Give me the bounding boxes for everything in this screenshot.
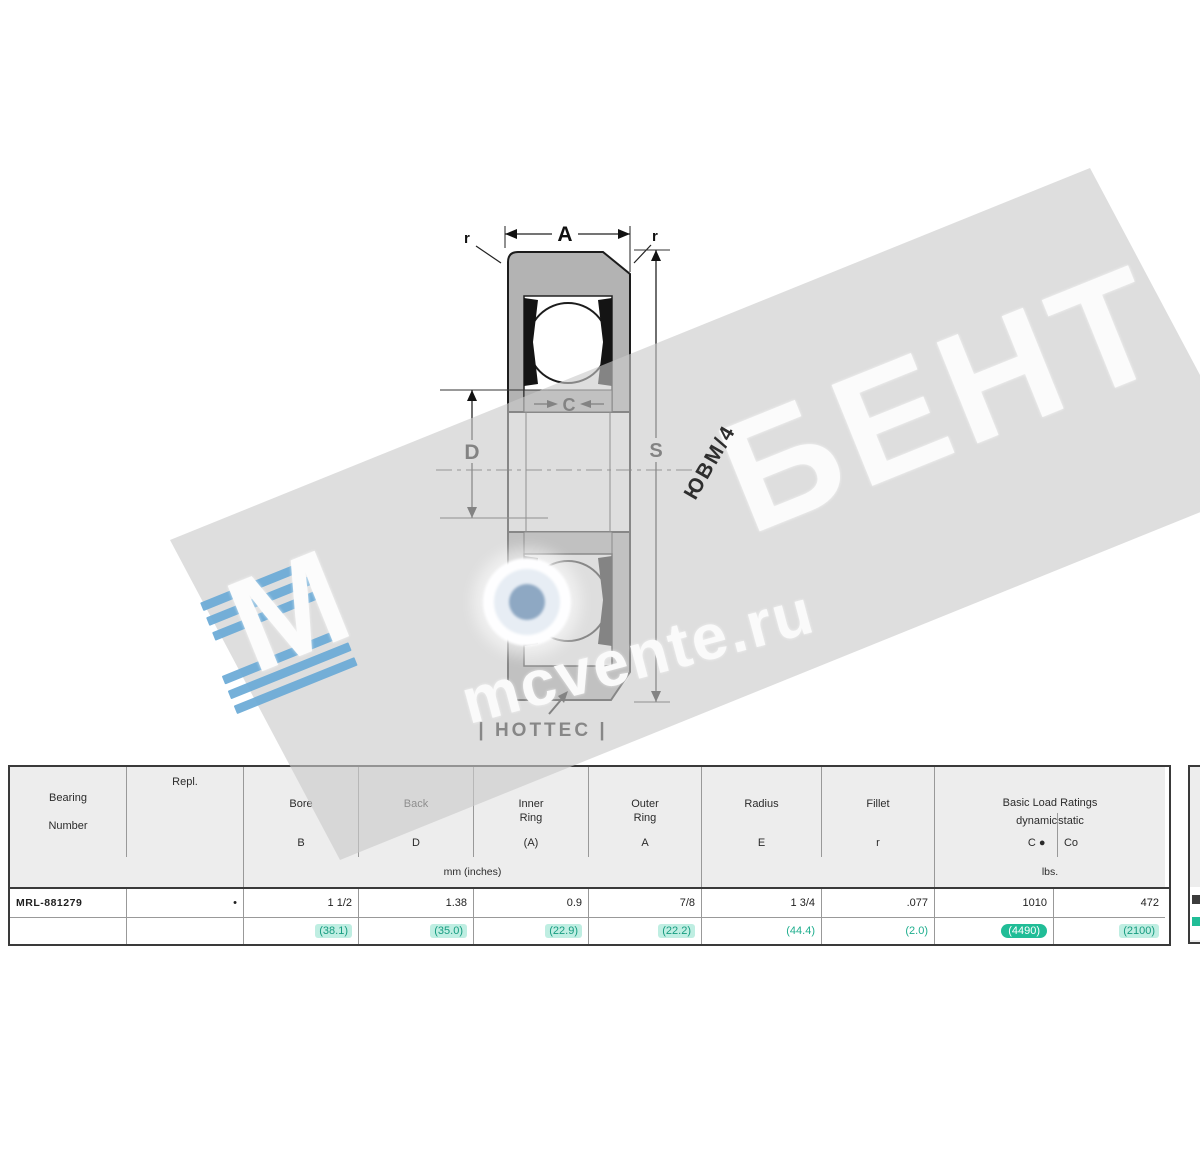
units-dimensions: mm (inches) — [244, 857, 702, 887]
cell-radius: (44.4) — [702, 917, 822, 944]
dim-label-a: A — [557, 223, 572, 246]
metric-value: (38.1) — [315, 924, 352, 938]
arrow-a-left — [505, 229, 517, 239]
header-symbol: (A) — [524, 837, 539, 849]
header-line: Inner — [518, 797, 543, 811]
cell-load-dynamic: (4490) — [935, 917, 1054, 944]
header-symbol: A — [641, 837, 648, 849]
cell-radius: 1 3/4 — [702, 889, 822, 917]
col-header-radius: Radius E — [702, 767, 822, 857]
metric-value: (22.2) — [658, 924, 695, 938]
subcol-static: static Co — [1057, 813, 1084, 857]
col-header-outer-ring: Outer Ring A — [589, 767, 702, 857]
table-header-row: Bearing Number Repl. Bore B Back D Inner… — [10, 767, 1169, 857]
table-units-row: mm (inches) lbs. — [10, 857, 1169, 887]
cell-bore: (38.1) — [244, 917, 359, 944]
metric-value: (2100) — [1119, 924, 1159, 938]
metric-value-badge: (4490) — [1001, 924, 1047, 938]
cell-load-static: (2100) — [1054, 917, 1165, 944]
metric-value: (35.0) — [430, 924, 467, 938]
header-line: Radius — [744, 797, 778, 811]
header-symbol: E — [758, 837, 765, 849]
cell-bore: 1 1/2 — [244, 889, 359, 917]
header-line: Bearing — [48, 791, 87, 805]
cell-back: 1.38 — [359, 889, 474, 917]
col-header-fillet: Fillet r — [822, 767, 935, 857]
cell-back: (35.0) — [359, 917, 474, 944]
adjacent-table-fragment — [1188, 765, 1200, 944]
header-line: Repl. — [172, 775, 198, 789]
header-line: Ring — [631, 811, 659, 825]
subcol-symbol: C ● — [1028, 837, 1046, 849]
cell-outer-ring: 7/8 — [589, 889, 702, 917]
header-symbol: r — [876, 837, 880, 849]
col-header-repl: Repl. — [127, 767, 244, 857]
cell-bearing-number: MRL-881279 — [10, 889, 127, 917]
cell-repl: • — [127, 889, 244, 917]
leader-r-right — [634, 245, 651, 263]
fillet-label-right: r — [652, 228, 658, 245]
cell-fillet: .077 — [822, 889, 935, 917]
arrow-d-top — [467, 390, 477, 401]
header-line: Fillet — [866, 797, 889, 811]
catalog-page: A r r C D S | HOTTEC | — [0, 0, 1200, 1165]
fragment-teal-blob — [1192, 917, 1200, 926]
subcol-label: dynamic — [1016, 815, 1057, 827]
cell-repl — [127, 917, 244, 944]
circle-logo-dot — [509, 584, 545, 620]
header-line: Ring — [518, 811, 543, 825]
fillet-label-left: r — [464, 230, 470, 247]
cell-bearing-number — [10, 917, 127, 944]
header-symbol: D — [412, 837, 420, 849]
table-row-metric: (38.1) (35.0) (22.9) (22.2) (44.4) (2.0)… — [10, 917, 1169, 944]
units-empty — [10, 857, 244, 887]
header-line: Outer — [631, 797, 659, 811]
cell-load-static: 472 — [1054, 889, 1165, 917]
load-group-title: Basic Load Ratings — [1003, 797, 1098, 809]
cell-load-dynamic: 1010 — [935, 889, 1054, 917]
cell-inner-ring: (22.9) — [474, 917, 589, 944]
cell-inner-ring: 0.9 — [474, 889, 589, 917]
arrow-s-top — [651, 250, 661, 261]
leader-r-left — [476, 246, 501, 263]
units-loads: lbs. — [935, 857, 1165, 887]
subcol-dynamic: dynamic C ● — [1016, 813, 1057, 857]
col-header-load-ratings-group: Basic Load Ratings dynamic C ● static Co — [935, 767, 1165, 857]
watermark-band — [0, 0, 1200, 1165]
units-empty — [702, 857, 935, 887]
col-header-bearing-number: Bearing Number — [10, 767, 127, 857]
cell-fillet: (2.0) — [822, 917, 935, 944]
header-line: Number — [48, 819, 87, 833]
cell-outer-ring: (22.2) — [589, 917, 702, 944]
watermark-circle-logo — [483, 558, 571, 646]
arrow-a-right — [618, 229, 630, 239]
header-symbol: B — [297, 837, 304, 849]
table-row-imperial: MRL-881279 • 1 1/2 1.38 0.9 7/8 1 3/4 .0… — [10, 887, 1169, 917]
metric-value: (22.9) — [545, 924, 582, 938]
subcol-label: static — [1058, 815, 1084, 827]
fragment-value-blob — [1192, 895, 1200, 904]
bearing-spec-table: Bearing Number Repl. Bore B Back D Inner… — [8, 765, 1171, 946]
subcol-symbol: Co — [1064, 837, 1078, 849]
